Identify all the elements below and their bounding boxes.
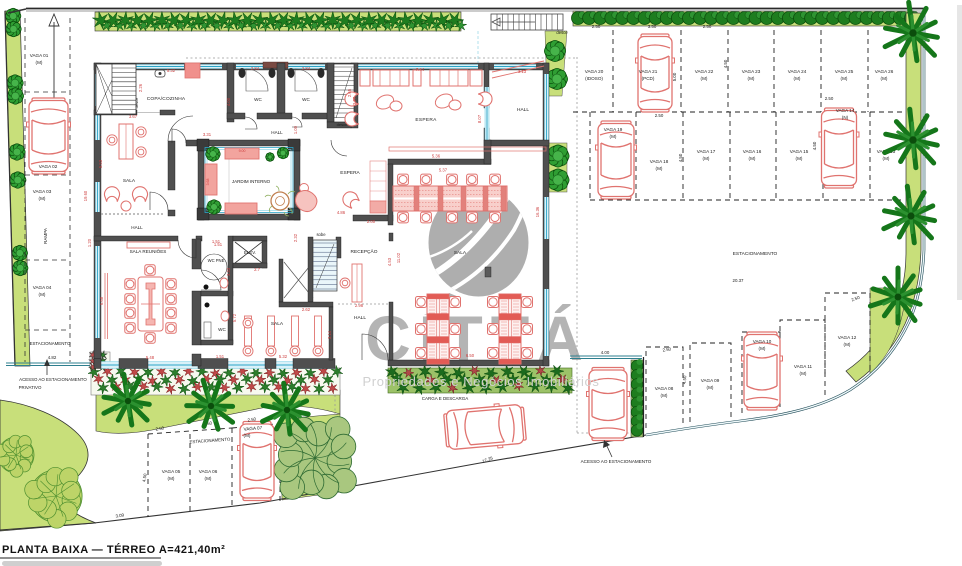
svg-text:VAGA 19: VAGA 19 [604, 127, 623, 132]
svg-text:4.00: 4.00 [601, 350, 610, 355]
svg-text:ESPERA: ESPERA [415, 117, 437, 123]
svg-text:5.32: 5.32 [279, 354, 288, 359]
svg-text:VAGA 18: VAGA 18 [650, 159, 669, 164]
svg-text:WC PNE: WC PNE [208, 258, 225, 263]
svg-text:VAGA 22: VAGA 22 [695, 69, 714, 74]
svg-text:1.51: 1.51 [212, 239, 221, 244]
svg-text:VAGA 23: VAGA 23 [742, 69, 761, 74]
svg-text:VAGA 09: VAGA 09 [701, 378, 720, 383]
svg-text:(N): (N) [842, 115, 849, 120]
svg-text:6.68: 6.68 [99, 296, 104, 305]
svg-text:(M): (M) [205, 476, 212, 481]
svg-text:3.14: 3.14 [327, 330, 332, 339]
svg-text:VAGA 05: VAGA 05 [162, 469, 181, 474]
svg-text:(M): (M) [39, 196, 46, 201]
svg-text:7.44: 7.44 [416, 67, 425, 72]
svg-text:3.31: 3.31 [203, 132, 212, 137]
svg-text:4.53: 4.53 [387, 257, 392, 266]
svg-text:ESTACIONAMENTO: ESTACIONAMENTO [733, 251, 778, 257]
svg-text:(M): (M) [796, 156, 803, 161]
svg-text:4.50: 4.50 [682, 375, 688, 385]
svg-text:desce: desce [556, 30, 568, 35]
svg-text:PRIVATIVO: PRIVATIVO [19, 385, 42, 390]
svg-text:PLANTA BAIXA — TÉRREO A=42: PLANTA BAIXA — TÉRREO A=421,40m² [2, 543, 225, 556]
svg-text:(M): (M) [800, 371, 807, 376]
svg-text:(PCD): (PCD) [642, 76, 655, 81]
svg-text:VAGA 25: VAGA 25 [835, 69, 854, 74]
svg-text:Propriedades e Negócios Imobil: Propriedades e Negócios Imobiliários [363, 374, 600, 389]
svg-text:2.26: 2.26 [138, 83, 143, 92]
svg-text:4.82: 4.82 [48, 355, 57, 360]
svg-text:9.00: 9.00 [239, 149, 246, 153]
svg-text:VAGA 12: VAGA 12 [838, 335, 857, 340]
svg-text:COPA/COZINHA: COPA/COZINHA [147, 96, 186, 102]
svg-text:VAGA 06: VAGA 06 [199, 469, 218, 474]
svg-text:5.48: 5.48 [146, 355, 155, 360]
svg-text:VAGA 26: VAGA 26 [875, 69, 894, 74]
svg-text:2.84: 2.84 [302, 66, 311, 71]
svg-text:19.60: 19.60 [83, 190, 88, 201]
svg-text:2.84: 2.84 [251, 66, 260, 71]
svg-text:2.50: 2.50 [592, 24, 601, 29]
svg-text:2.50: 2.50 [703, 24, 712, 29]
svg-text:(M): (M) [883, 156, 890, 161]
svg-text:(M): (M) [759, 346, 766, 351]
svg-text:WC: WC [254, 97, 262, 102]
svg-text:2.62: 2.62 [302, 307, 311, 312]
svg-text:4.50: 4.50 [723, 59, 728, 68]
svg-text:VAGA 24: VAGA 24 [788, 69, 807, 74]
svg-text:VAGA 14: VAGA 14 [836, 108, 855, 113]
svg-text:5.72: 5.72 [232, 313, 237, 322]
svg-text:2.00: 2.00 [367, 219, 376, 224]
svg-text:(M): (M) [748, 76, 755, 81]
svg-text:2.32: 2.32 [293, 233, 298, 242]
svg-text:(M): (M) [661, 393, 668, 398]
svg-text:(IDOSO): (IDOSO) [585, 76, 603, 81]
svg-text:(M): (M) [610, 134, 617, 139]
svg-text:HALL: HALL [354, 315, 366, 321]
svg-text:VAGA 11: VAGA 11 [794, 364, 813, 369]
svg-text:8.07: 8.07 [477, 114, 482, 123]
svg-text:(M): (M) [707, 385, 714, 390]
svg-text:3.50: 3.50 [648, 24, 657, 29]
svg-text:(M): (M) [168, 476, 175, 481]
svg-text:sobe: sobe [316, 232, 326, 237]
svg-text:ESTACIONAMENTO: ESTACIONAMENTO [30, 341, 71, 346]
svg-text:SALA: SALA [271, 321, 284, 327]
svg-text:(M): (M) [844, 342, 851, 347]
svg-text:VAGA 01: VAGA 01 [30, 53, 49, 58]
svg-text:11.02: 11.02 [396, 252, 401, 263]
svg-text:1.51: 1.51 [216, 354, 225, 359]
svg-text:VAGA 16: VAGA 16 [743, 149, 762, 154]
svg-text:ELEV.: ELEV. [244, 250, 256, 255]
svg-text:(M): (M) [244, 433, 251, 438]
svg-text:2.50: 2.50 [655, 113, 664, 118]
svg-text:VAGA 04: VAGA 04 [33, 285, 52, 290]
svg-text:5.36: 5.36 [432, 154, 441, 159]
svg-text:HALL: HALL [271, 130, 283, 135]
svg-text:VAGA 21: VAGA 21 [639, 69, 658, 74]
svg-text:5.53: 5.53 [98, 159, 103, 168]
svg-text:CARGA E DESCARGA: CARGA E DESCARGA [422, 396, 469, 401]
svg-text:RAMPA: RAMPA [43, 227, 48, 244]
svg-text:3.33: 3.33 [226, 267, 231, 276]
svg-text:3.13: 3.13 [518, 69, 527, 74]
svg-text:1.00: 1.00 [293, 125, 298, 134]
svg-text:3.67: 3.67 [129, 114, 138, 119]
svg-text:VAGA 08: VAGA 08 [655, 386, 674, 391]
svg-text:3.68: 3.68 [206, 179, 210, 186]
svg-text:SALA: SALA [454, 250, 467, 256]
svg-text:VAGA 15: VAGA 15 [790, 149, 809, 154]
svg-text:ACESSO AO ESTACIONAMENTO: ACESSO AO ESTACIONAMENTO [19, 377, 87, 382]
svg-text:VAGA 10: VAGA 10 [753, 339, 772, 344]
svg-text:HALL: HALL [131, 225, 143, 230]
svg-text:20.37: 20.37 [733, 278, 745, 283]
svg-text:2.50: 2.50 [825, 96, 834, 101]
svg-text:(M): (M) [656, 166, 663, 171]
svg-text:5.32: 5.32 [167, 68, 176, 73]
svg-text:2.65: 2.65 [347, 88, 352, 97]
svg-text:RECEPÇÃO: RECEPÇÃO [351, 248, 378, 255]
svg-text:4.50: 4.50 [812, 141, 817, 150]
svg-text:4.50: 4.50 [678, 153, 683, 162]
svg-text:ESPERA: ESPERA [340, 170, 360, 176]
svg-text:JARDIM INTERNO: JARDIM INTERNO [232, 179, 271, 184]
svg-text:(M): (M) [36, 60, 43, 65]
svg-text:6.50: 6.50 [466, 353, 475, 358]
svg-text:4.00: 4.00 [226, 97, 231, 106]
svg-text:ACESSO AO ESTACIONAMENTO: ACESSO AO ESTACIONAMENTO [581, 459, 652, 464]
svg-text:4.86: 4.86 [337, 210, 346, 215]
svg-text:SALA REUNIÕES: SALA REUNIÕES [130, 248, 167, 254]
svg-text:desce: desce [134, 97, 139, 108]
svg-text:VAGA 17: VAGA 17 [697, 149, 716, 154]
svg-text:VAGA 02: VAGA 02 [39, 164, 58, 169]
svg-text:(M): (M) [841, 76, 848, 81]
svg-text:5.00: 5.00 [672, 72, 677, 81]
svg-text:(M): (M) [749, 156, 756, 161]
svg-text:(M): (M) [39, 292, 46, 297]
svg-text:WC: WC [302, 97, 310, 102]
svg-text:(M): (M) [794, 76, 801, 81]
svg-text:5.37: 5.37 [439, 168, 448, 173]
svg-text:(M): (M) [881, 76, 888, 81]
svg-text:3.77: 3.77 [352, 96, 357, 105]
svg-text:1.20: 1.20 [87, 238, 92, 247]
svg-text:WC: WC [218, 327, 226, 332]
svg-text:16.36: 16.36 [535, 206, 540, 217]
svg-text:(M): (M) [703, 156, 710, 161]
svg-text:VAGA 03: VAGA 03 [33, 189, 52, 194]
svg-text:SALA: SALA [123, 178, 136, 184]
svg-text:2.7: 2.7 [254, 267, 260, 272]
svg-text:VAGA 20: VAGA 20 [585, 69, 604, 74]
svg-text:HALL: HALL [517, 107, 529, 113]
svg-text:(M): (M) [701, 76, 708, 81]
